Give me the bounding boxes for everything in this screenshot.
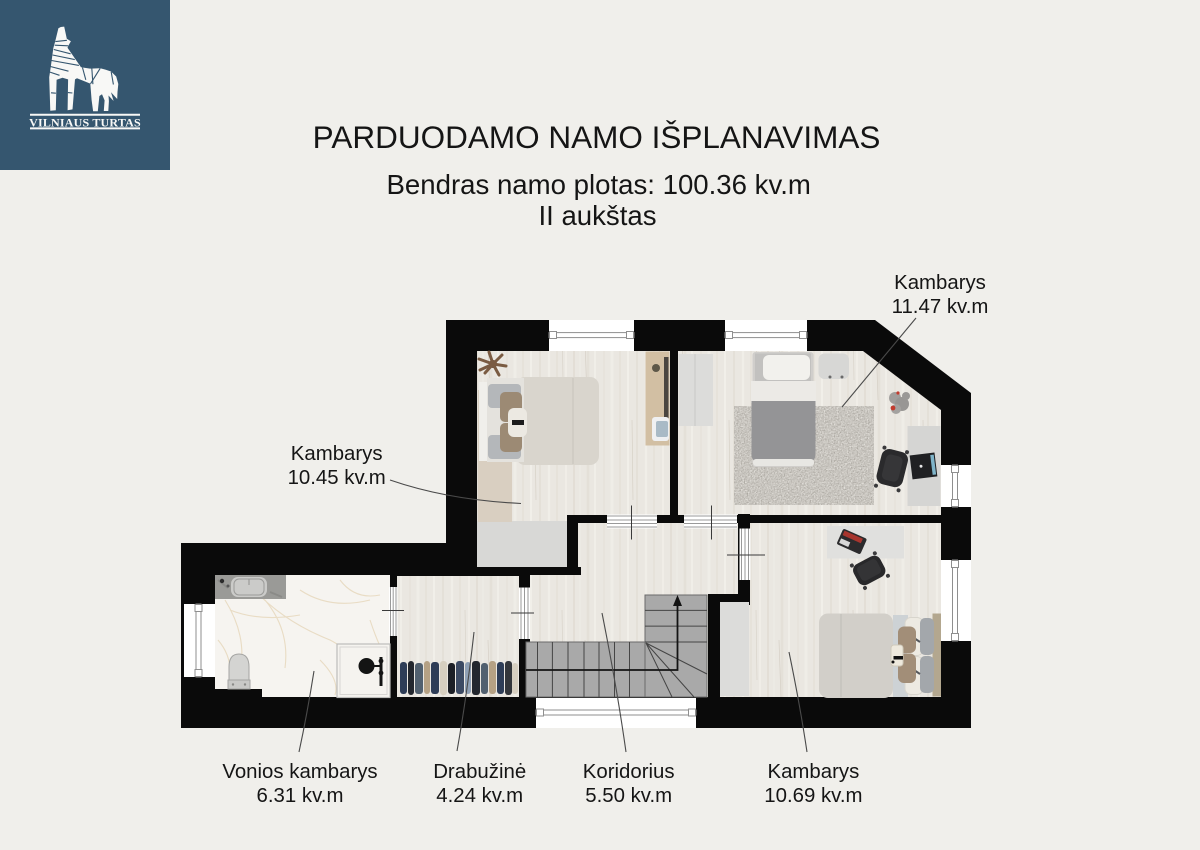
svg-text:VILNIAUS TURTAS: VILNIAUS TURTAS (29, 115, 141, 129)
